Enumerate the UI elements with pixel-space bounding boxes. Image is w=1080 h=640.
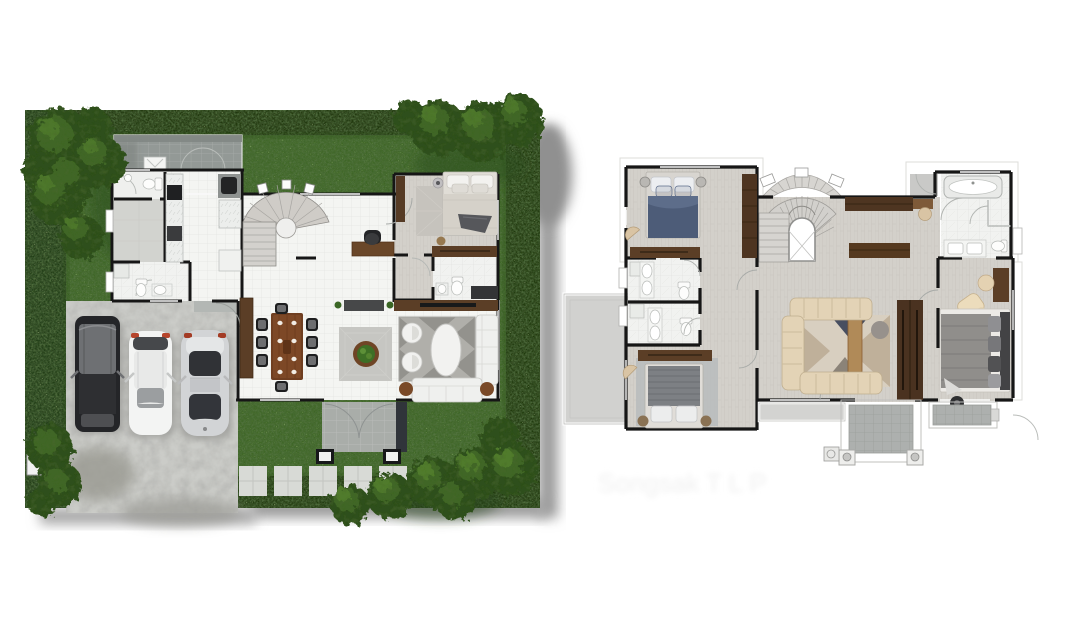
svg-text:Songsak T L P: Songsak T L P (598, 468, 767, 498)
